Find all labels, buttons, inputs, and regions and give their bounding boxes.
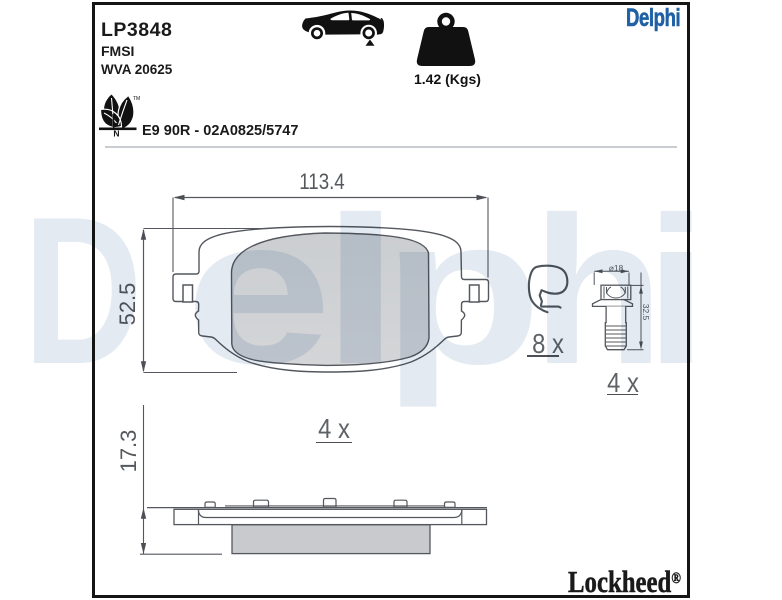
- svg-text:N: N: [113, 129, 119, 139]
- svg-text:TM: TM: [133, 96, 140, 102]
